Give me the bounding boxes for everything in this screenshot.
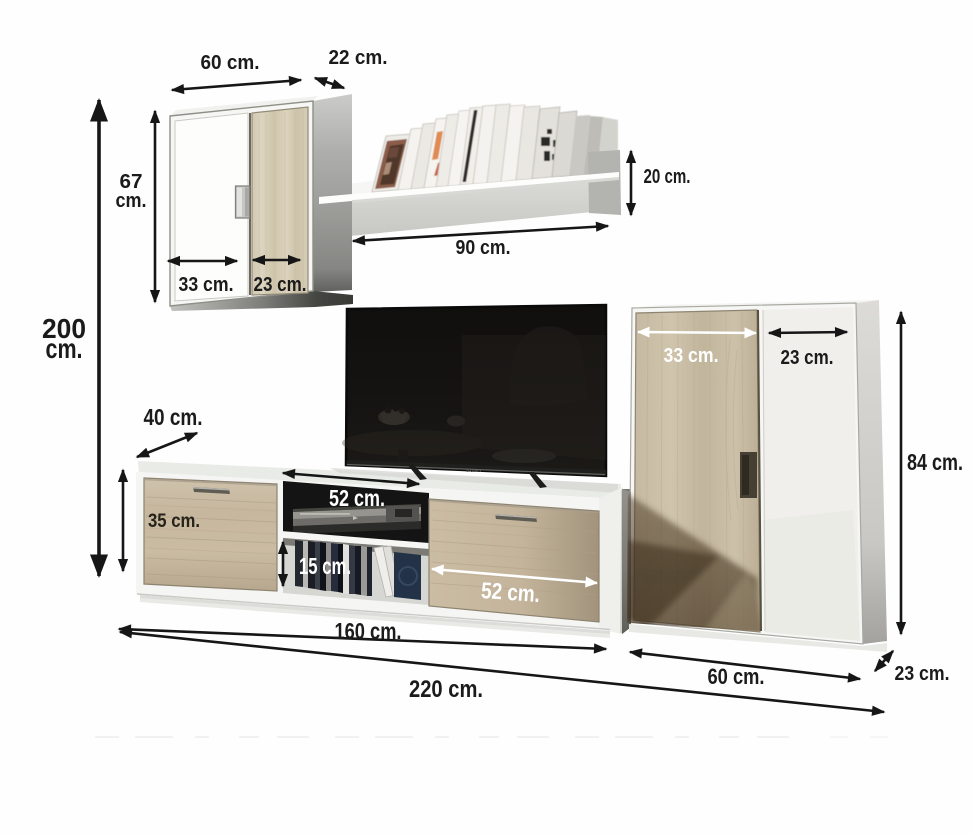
svg-text:SONY: SONY (466, 468, 483, 473)
svg-text:160 cm.: 160 cm. (335, 618, 402, 644)
svg-text:35 cm.: 35 cm. (148, 510, 200, 532)
svg-text:33 cm.: 33 cm. (664, 344, 719, 367)
svg-text:90 cm.: 90 cm. (456, 236, 511, 259)
svg-text:23 cm.: 23 cm. (254, 273, 307, 296)
svg-text:15 cm.: 15 cm. (299, 553, 351, 579)
svg-text:84 cm.: 84 cm. (907, 449, 963, 475)
svg-text:60 cm.: 60 cm. (201, 51, 260, 74)
svg-text:23 cm.: 23 cm. (781, 346, 834, 369)
svg-text:52 cm.: 52 cm. (480, 577, 541, 607)
svg-text:cm.: cm. (116, 189, 147, 212)
svg-text:20 cm.: 20 cm. (644, 165, 691, 188)
svg-text:220 cm.: 220 cm. (409, 676, 483, 703)
svg-text:40 cm.: 40 cm. (144, 404, 203, 430)
svg-text:22 cm.: 22 cm. (329, 46, 388, 69)
svg-text:33 cm.: 33 cm. (179, 273, 234, 296)
svg-text:23 cm.: 23 cm. (895, 662, 950, 685)
svg-text:60 cm.: 60 cm. (708, 664, 765, 689)
svg-text:cm.: cm. (46, 333, 83, 364)
svg-text:52 cm.: 52 cm. (329, 485, 385, 511)
